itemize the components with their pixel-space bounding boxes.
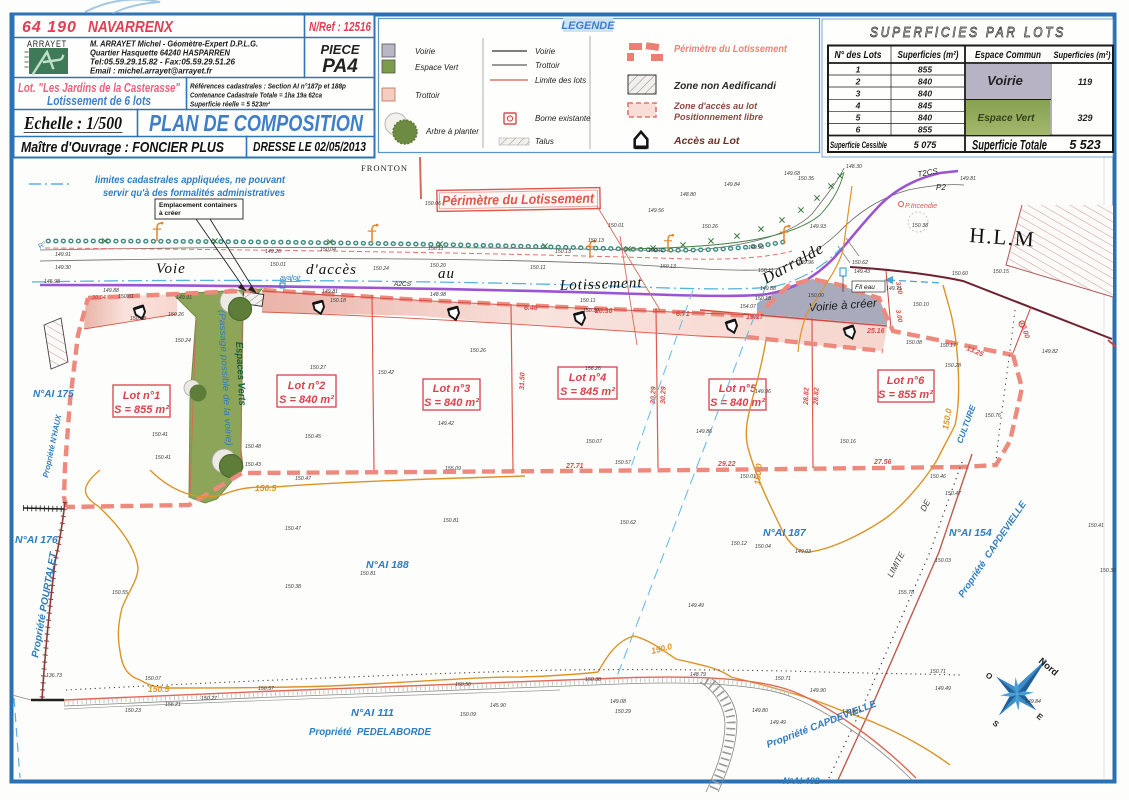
svg-text:Lotissement: Lotissement <box>559 275 643 294</box>
svg-text:145.98: 145.98 <box>44 279 60 285</box>
svg-text:150.30: 150.30 <box>583 308 599 314</box>
svg-text:149.49: 149.49 <box>770 720 786 726</box>
svg-text:29.22: 29.22 <box>717 461 736 468</box>
svg-text:6: 6 <box>856 125 861 135</box>
svg-text:Propriété PEDELABORDE: Propriété PEDELABORDE <box>309 727 431 738</box>
svg-text:N°AI 175: N°AI 175 <box>33 389 74 400</box>
svg-text:150.17: 150.17 <box>940 343 957 349</box>
svg-text:148.80: 148.80 <box>680 192 696 198</box>
svg-text:149.90: 149.90 <box>810 688 826 694</box>
svg-text:150.04: 150.04 <box>755 544 771 550</box>
svg-text:150.01: 150.01 <box>270 262 286 268</box>
svg-text:150.43: 150.43 <box>245 462 261 468</box>
svg-text:149.84: 149.84 <box>1025 699 1041 705</box>
svg-text:150.01: 150.01 <box>740 474 756 480</box>
svg-text:31.50: 31.50 <box>519 372 527 390</box>
svg-text:Lotissement de 6 lots: Lotissement de 6 lots <box>47 94 151 108</box>
svg-text:Lot n°5: Lot n°5 <box>719 383 757 395</box>
svg-text:30.29: 30.29 <box>660 386 668 404</box>
svg-text:329: 329 <box>1077 113 1092 123</box>
svg-text:Superficies (m²): Superficies (m²) <box>898 50 960 61</box>
svg-text:150.29: 150.29 <box>615 709 631 715</box>
svg-text:6.71: 6.71 <box>676 311 690 318</box>
svg-text:28.82: 28.82 <box>803 387 811 406</box>
svg-text:150.12: 150.12 <box>648 248 664 254</box>
svg-text:149.96: 149.96 <box>755 389 771 395</box>
svg-text:Superficie Totale: Superficie Totale <box>972 137 1047 153</box>
svg-text:149.84: 149.84 <box>724 182 740 188</box>
svg-text:150.06: 150.06 <box>425 201 441 207</box>
svg-text:156.26: 156.26 <box>585 366 601 372</box>
svg-text:PIECE: PIECE <box>320 42 359 57</box>
svg-text:150.42: 150.42 <box>378 370 394 376</box>
svg-text:149.86: 149.86 <box>696 429 712 435</box>
svg-text:Lot. "Les Jardins de la Caster: Lot. "Les Jardins de la Casterasse" <box>18 81 181 95</box>
svg-text:150.38: 150.38 <box>585 677 601 683</box>
svg-text:5 523: 5 523 <box>1069 138 1100 152</box>
svg-text:P2: P2 <box>936 183 946 192</box>
svg-text:150.24: 150.24 <box>175 338 191 344</box>
svg-text:SUPERFICIES PAR LOTS: SUPERFICIES PAR LOTS <box>870 24 1066 41</box>
svg-text:840: 840 <box>918 77 932 87</box>
svg-text:N°AI 188: N°AI 188 <box>366 559 409 571</box>
svg-text:Email : michel.arrayet@arrayet: Email : michel.arrayet@arrayet.fr <box>90 66 213 76</box>
svg-text:S = 840 m²: S = 840 m² <box>424 397 479 409</box>
svg-text:150.16: 150.16 <box>840 439 856 445</box>
svg-text:Echelle : 1/500: Echelle : 1/500 <box>23 113 122 133</box>
svg-text:Trottoir: Trottoir <box>535 61 560 70</box>
svg-text:150.24: 150.24 <box>373 266 389 272</box>
svg-text:S = 855 m²: S = 855 m² <box>878 389 933 401</box>
svg-text:servir qu'à des formalités adm: servir qu'à des formalités administrativ… <box>103 187 285 199</box>
svg-text:PA4: PA4 <box>322 56 358 77</box>
svg-text:Voie: Voie <box>156 261 186 277</box>
svg-text:150.18: 150.18 <box>755 296 771 302</box>
svg-text:840: 840 <box>918 89 932 99</box>
svg-text:N°AI 482: N°AI 482 <box>783 776 820 786</box>
svg-text:Références cadastrales : Secti: Références cadastrales : Section AI n°18… <box>190 82 346 91</box>
svg-text:FIl eau: FIl eau <box>855 284 875 291</box>
svg-text:Voirie: Voirie <box>987 73 1023 88</box>
svg-text:150.15: 150.15 <box>993 269 1009 275</box>
svg-text:150.07: 150.07 <box>145 676 162 682</box>
svg-text:149.71: 149.71 <box>886 286 902 292</box>
svg-text:N°AI 111: N°AI 111 <box>351 708 394 719</box>
svg-text:Lot n°3: Lot n°3 <box>433 383 470 395</box>
svg-text:855: 855 <box>918 65 932 75</box>
svg-text:149.91: 149.91 <box>176 295 192 301</box>
svg-text:150.62: 150.62 <box>620 520 636 526</box>
svg-text:150.11: 150.11 <box>428 246 444 252</box>
svg-text:150.18: 150.18 <box>330 298 346 304</box>
svg-text:149.42: 149.42 <box>438 421 454 427</box>
svg-text:149.68: 149.68 <box>784 171 800 177</box>
svg-text:S = 845 m²: S = 845 m² <box>560 386 615 398</box>
svg-text:150.00: 150.00 <box>808 293 824 299</box>
svg-text:149.26: 149.26 <box>265 249 281 255</box>
svg-text:Arbre à planter: Arbre à planter <box>425 127 479 136</box>
svg-text:154.07: 154.07 <box>740 304 757 310</box>
svg-text:Espace Vert: Espace Vert <box>978 113 1036 124</box>
svg-text:150.5: 150.5 <box>255 483 277 493</box>
svg-text:148.98: 148.98 <box>430 292 446 298</box>
svg-text:840: 840 <box>918 113 932 123</box>
svg-text:149.81: 149.81 <box>322 289 338 295</box>
svg-text:Voirie: Voirie <box>535 47 556 56</box>
svg-text:155.78: 155.78 <box>898 590 914 596</box>
svg-text:Voirie: Voirie <box>415 47 436 56</box>
svg-text:149.88: 149.88 <box>842 709 858 715</box>
svg-text:150.09: 150.09 <box>460 712 476 718</box>
svg-text:N°AI 187: N°AI 187 <box>763 527 807 539</box>
svg-text:150.28: 150.28 <box>945 363 961 369</box>
svg-text:149.91: 149.91 <box>55 252 71 258</box>
svg-text:150.57: 150.57 <box>615 460 632 466</box>
svg-text:150.23: 150.23 <box>125 708 141 714</box>
svg-text:150.13: 150.13 <box>555 249 571 255</box>
svg-text:N°AI 154: N°AI 154 <box>949 527 992 539</box>
svg-text:150.62: 150.62 <box>852 260 868 266</box>
svg-text:150.46: 150.46 <box>930 474 946 480</box>
svg-text:150.08: 150.08 <box>906 340 922 346</box>
svg-text:150.11: 150.11 <box>758 268 774 274</box>
svg-text:Positionnement libre: Positionnement libre <box>674 112 763 122</box>
svg-text:150.11: 150.11 <box>530 265 546 271</box>
svg-text:148.79: 148.79 <box>690 672 706 678</box>
svg-text:150.38: 150.38 <box>285 584 301 590</box>
svg-text:2: 2 <box>855 77 861 87</box>
svg-text:149.82: 149.82 <box>1042 349 1058 355</box>
svg-text:27.56: 27.56 <box>873 459 892 466</box>
svg-text:ARRAYET: ARRAYET <box>27 39 67 49</box>
svg-text:150.41: 150.41 <box>155 455 171 461</box>
svg-text:5 075: 5 075 <box>914 140 938 150</box>
svg-text:150.13: 150.13 <box>660 264 676 270</box>
svg-text:Contenance Cadastrale Totale =: Contenance Cadastrale Totale = 1ha 19a 6… <box>190 91 322 100</box>
svg-text:d'accès: d'accès <box>306 262 357 278</box>
svg-text:N°AI 176: N°AI 176 <box>15 534 58 546</box>
svg-text:150.01: 150.01 <box>608 223 624 229</box>
svg-text:150.27: 150.27 <box>201 696 218 702</box>
svg-text:150.10: 150.10 <box>913 302 929 308</box>
svg-text:Zone non Aedificandi: Zone non Aedificandi <box>673 80 777 92</box>
svg-text:S = 855 m²: S = 855 m² <box>114 404 169 416</box>
svg-text:150.35: 150.35 <box>798 176 814 182</box>
svg-text:150.12: 150.12 <box>731 541 747 547</box>
svg-text:149.93: 149.93 <box>810 224 826 230</box>
svg-text:5: 5 <box>856 113 861 123</box>
svg-text:Superficie Cessible: Superficie Cessible <box>830 140 887 151</box>
svg-text:1: 1 <box>856 65 861 75</box>
svg-text:NAVARRENX: NAVARRENX <box>88 19 174 36</box>
svg-text:28.82: 28.82 <box>813 387 821 406</box>
svg-text:150.11: 150.11 <box>580 298 596 304</box>
svg-text:149.49: 149.49 <box>935 686 951 692</box>
svg-text:limites cadastrales appliquées: limites cadastrales appliquées, ne pouva… <box>95 174 285 186</box>
svg-text:27.71: 27.71 <box>565 463 584 470</box>
svg-text:150.47: 150.47 <box>945 491 962 497</box>
svg-text:149.56: 149.56 <box>648 208 664 214</box>
svg-text:150.76: 150.76 <box>985 413 1001 419</box>
svg-text:S = 840 m²: S = 840 m² <box>710 397 765 409</box>
svg-text:148.30: 148.30 <box>846 164 862 170</box>
svg-text:150.35: 150.35 <box>1100 568 1116 574</box>
svg-text:Lot n°2: Lot n°2 <box>288 380 325 392</box>
svg-text:FRONTON: FRONTON <box>361 163 408 173</box>
svg-text:150.81: 150.81 <box>443 518 459 524</box>
svg-text:à créer: à créer <box>159 210 181 217</box>
svg-text:150.20: 150.20 <box>430 263 446 269</box>
svg-text:150.08: 150.08 <box>130 316 146 322</box>
svg-text:150.71: 150.71 <box>930 669 946 675</box>
svg-text:150.57: 150.57 <box>258 686 275 692</box>
svg-text:Zone d'accès au lot: Zone d'accès au lot <box>673 101 758 111</box>
svg-text:Espace Commun: Espace Commun <box>975 49 1041 61</box>
svg-text:DRESSE LE 02/05/2013: DRESSE LE 02/05/2013 <box>253 140 366 154</box>
svg-text:150.50: 150.50 <box>455 682 471 688</box>
svg-text:150.55: 150.55 <box>112 590 128 596</box>
svg-text:Lot n°4: Lot n°4 <box>569 372 606 384</box>
svg-text:Lot n°1: Lot n°1 <box>123 390 160 402</box>
svg-text:149.88: 149.88 <box>760 286 776 292</box>
svg-text:Trottoir: Trottoir <box>415 91 440 100</box>
svg-text:P.Incendie: P.Incendie <box>905 203 937 210</box>
svg-text:136.73: 136.73 <box>46 673 62 679</box>
svg-text:855: 855 <box>918 125 932 135</box>
svg-text:Espace Vert: Espace Vert <box>415 63 459 72</box>
svg-text:149.08: 149.08 <box>610 699 626 705</box>
svg-text:149.93: 149.93 <box>748 245 764 251</box>
svg-text:150.27: 150.27 <box>310 365 327 371</box>
svg-text:Accès au Lot: Accès au Lot <box>673 135 740 147</box>
svg-text:25.16: 25.16 <box>866 328 885 335</box>
svg-text:150.01: 150.01 <box>118 294 134 300</box>
svg-text:30.04: 30.04 <box>92 295 106 301</box>
svg-text:150.26: 150.26 <box>168 312 184 318</box>
svg-text:149.43: 149.43 <box>854 269 870 275</box>
svg-text:Superficie réelle = 5 523m²: Superficie réelle = 5 523m² <box>190 100 270 109</box>
svg-text:156.21: 156.21 <box>165 702 181 708</box>
svg-text:150.45: 150.45 <box>305 434 321 440</box>
svg-text:LEGENDE: LEGENDE <box>561 20 615 32</box>
svg-text:150.26: 150.26 <box>702 224 718 230</box>
svg-text:H.L.M: H.L.M <box>969 223 1037 252</box>
svg-text:150.41: 150.41 <box>152 432 168 438</box>
svg-text:150.03: 150.03 <box>935 558 951 564</box>
svg-text:A2CS: A2CS <box>393 281 412 288</box>
svg-text:4: 4 <box>855 101 861 111</box>
svg-text:150.47: 150.47 <box>295 476 312 482</box>
svg-text:155.09: 155.09 <box>445 466 461 472</box>
svg-text:3: 3 <box>856 89 861 99</box>
svg-text:Périmètre du Lotissement: Périmètre du Lotissement <box>674 43 787 55</box>
svg-text:S = 840 m²: S = 840 m² <box>279 394 334 406</box>
svg-text:Emplacement containers: Emplacement containers <box>159 202 237 209</box>
svg-text:64 190: 64 190 <box>22 19 77 36</box>
svg-text:149.80: 149.80 <box>752 708 768 714</box>
svg-text:150.13: 150.13 <box>588 238 604 244</box>
svg-text:PLAN DE COMPOSITION: PLAN DE COMPOSITION <box>149 110 363 136</box>
svg-text:119: 119 <box>1078 77 1092 87</box>
svg-text:149.49: 149.49 <box>688 603 704 609</box>
svg-text:150.71: 150.71 <box>775 676 791 682</box>
svg-text:150.48: 150.48 <box>245 444 261 450</box>
svg-text:150.04: 150.04 <box>320 247 336 253</box>
svg-text:avaloir: avaloir <box>280 275 301 282</box>
svg-text:150.26: 150.26 <box>470 348 486 354</box>
svg-text:145.90: 145.90 <box>490 703 506 709</box>
svg-text:149.96: 149.96 <box>798 260 814 266</box>
svg-text:150.5: 150.5 <box>148 684 170 694</box>
svg-text:150.47: 150.47 <box>285 526 302 532</box>
svg-text:6.46: 6.46 <box>524 305 538 312</box>
svg-text:150.38: 150.38 <box>912 223 928 229</box>
svg-text:Maître d'Ouvrage : FONCIER PLU: Maître d'Ouvrage : FONCIER PLUS <box>21 139 224 156</box>
svg-text:150.81: 150.81 <box>360 571 376 577</box>
svg-text:149.81: 149.81 <box>960 176 976 182</box>
svg-text:149.03: 149.03 <box>795 549 811 555</box>
svg-text:Superficies (m²): Superficies (m²) <box>1054 50 1111 61</box>
svg-text:150.41: 150.41 <box>1088 523 1104 529</box>
svg-text:150.07: 150.07 <box>586 439 603 445</box>
svg-text:845: 845 <box>918 101 932 111</box>
svg-text:Limite des lots: Limite des lots <box>535 76 586 85</box>
svg-text:149.88: 149.88 <box>103 288 119 294</box>
svg-text:149.30: 149.30 <box>55 265 71 271</box>
svg-text:Borne existante: Borne existante <box>535 114 591 123</box>
svg-text:Périmètre du Lotissement: Périmètre du Lotissement <box>442 191 595 209</box>
svg-text:N° des Lots: N° des Lots <box>835 49 882 61</box>
svg-text:Talus: Talus <box>535 137 554 146</box>
svg-text:150.60: 150.60 <box>952 271 968 277</box>
svg-text:N/Ref : 12516: N/Ref : 12516 <box>309 19 372 34</box>
